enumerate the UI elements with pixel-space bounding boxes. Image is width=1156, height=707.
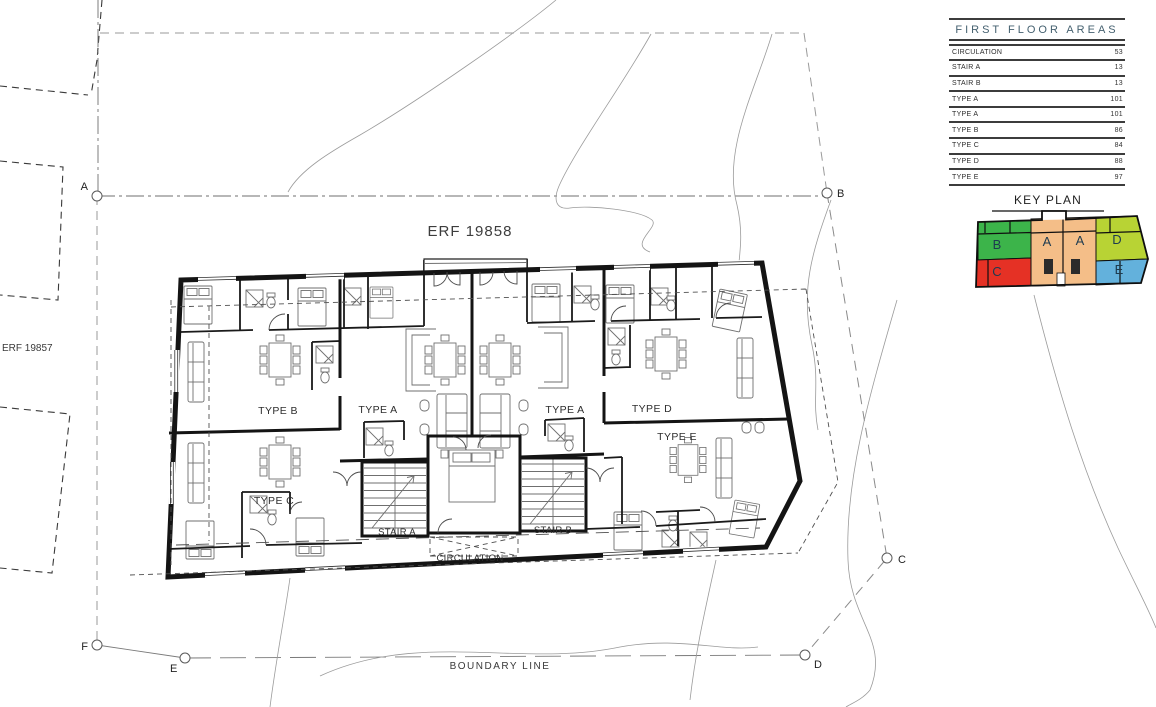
key-letter-e: E — [1115, 262, 1124, 277]
row-label: STAIR A — [952, 64, 980, 71]
row-label: CIRCULATION — [952, 49, 1002, 56]
table-row: STAIR B 13 — [949, 77, 1125, 93]
boundary-line — [97, 645, 185, 658]
row-label: TYPE B — [952, 127, 979, 134]
marker-d: D — [814, 659, 822, 671]
table-row: TYPE D 88 — [949, 155, 1125, 171]
row-value: 97 — [1115, 174, 1123, 181]
key-letter-c: C — [992, 264, 1001, 279]
key-letter-a2: A — [1076, 233, 1085, 248]
row-value: 84 — [1115, 142, 1123, 149]
row-value: 101 — [1110, 96, 1123, 103]
marker-a: A — [81, 181, 89, 193]
row-value: 88 — [1115, 158, 1123, 165]
label-type-e: TYPE E — [657, 431, 697, 443]
key-letter-d: D — [1112, 232, 1121, 247]
table-row: TYPE A 101 — [949, 92, 1125, 108]
row-value: 13 — [1115, 80, 1123, 87]
table-row: CIRCULATION 53 — [949, 46, 1125, 62]
key-unit-b — [978, 221, 1031, 261]
key-letter-a1: A — [1043, 234, 1052, 249]
label-type-a-left: TYPE A — [358, 404, 397, 416]
row-label: TYPE C — [952, 142, 979, 149]
label-type-b: TYPE B — [258, 405, 298, 417]
label-stair-b: STAIR B — [534, 525, 572, 536]
neighbor-plot-outline — [0, 86, 88, 95]
key-unit-c — [976, 258, 1031, 287]
table-row: STAIR A 13 — [949, 61, 1125, 77]
row-label: STAIR B — [952, 80, 981, 87]
erf-neighbor-label: ERF 19857 — [2, 343, 53, 354]
row-label: TYPE D — [952, 158, 979, 165]
table-row: TYPE A 101 — [949, 108, 1125, 124]
marker-e: E — [170, 663, 177, 675]
label-type-d: TYPE D — [632, 403, 672, 415]
row-label: TYPE E — [952, 174, 979, 181]
row-value: 101 — [1110, 111, 1123, 118]
label-circulation: CIRCULATION — [437, 553, 504, 564]
table-row: TYPE C 84 — [949, 139, 1125, 155]
areas-table-title: FIRST FLOOR AREAS — [949, 18, 1125, 41]
erf-main-label: ERF 19858 — [428, 223, 513, 240]
building-plan: TYPE B TYPE A TYPE A TYPE D TYPE E TYPE … — [130, 259, 838, 578]
row-value: 13 — [1115, 64, 1123, 71]
table-row: TYPE E 97 — [949, 170, 1125, 186]
label-type-a-right: TYPE A — [545, 404, 584, 416]
table-row: TYPE B 86 — [949, 123, 1125, 139]
row-value: 53 — [1115, 49, 1123, 56]
boundary-line-label: BOUNDARY LINE — [450, 661, 551, 672]
key-plan: KEY PLAN B A A D C E — [976, 193, 1148, 287]
row-value: 86 — [1115, 127, 1123, 134]
key-letter-b: B — [993, 237, 1002, 252]
areas-table-rows: CIRCULATION 53 STAIR A 13 STAIR B 13 TYP… — [949, 44, 1125, 186]
row-label: TYPE A — [952, 96, 978, 103]
areas-table: FIRST FLOOR AREAS CIRCULATION 53 STAIR A… — [949, 18, 1125, 186]
label-stair-a: STAIR A — [378, 527, 416, 538]
marker-b: B — [837, 188, 844, 200]
key-unit-d — [1096, 216, 1148, 261]
key-plan-title: KEY PLAN — [1014, 193, 1082, 207]
marker-c: C — [898, 554, 906, 566]
floor-plan-sheet: TYPE B TYPE A TYPE A TYPE D TYPE E TYPE … — [0, 0, 1156, 707]
row-label: TYPE A — [952, 111, 978, 118]
marker-f: F — [81, 641, 88, 653]
label-type-c: TYPE C — [254, 495, 294, 507]
